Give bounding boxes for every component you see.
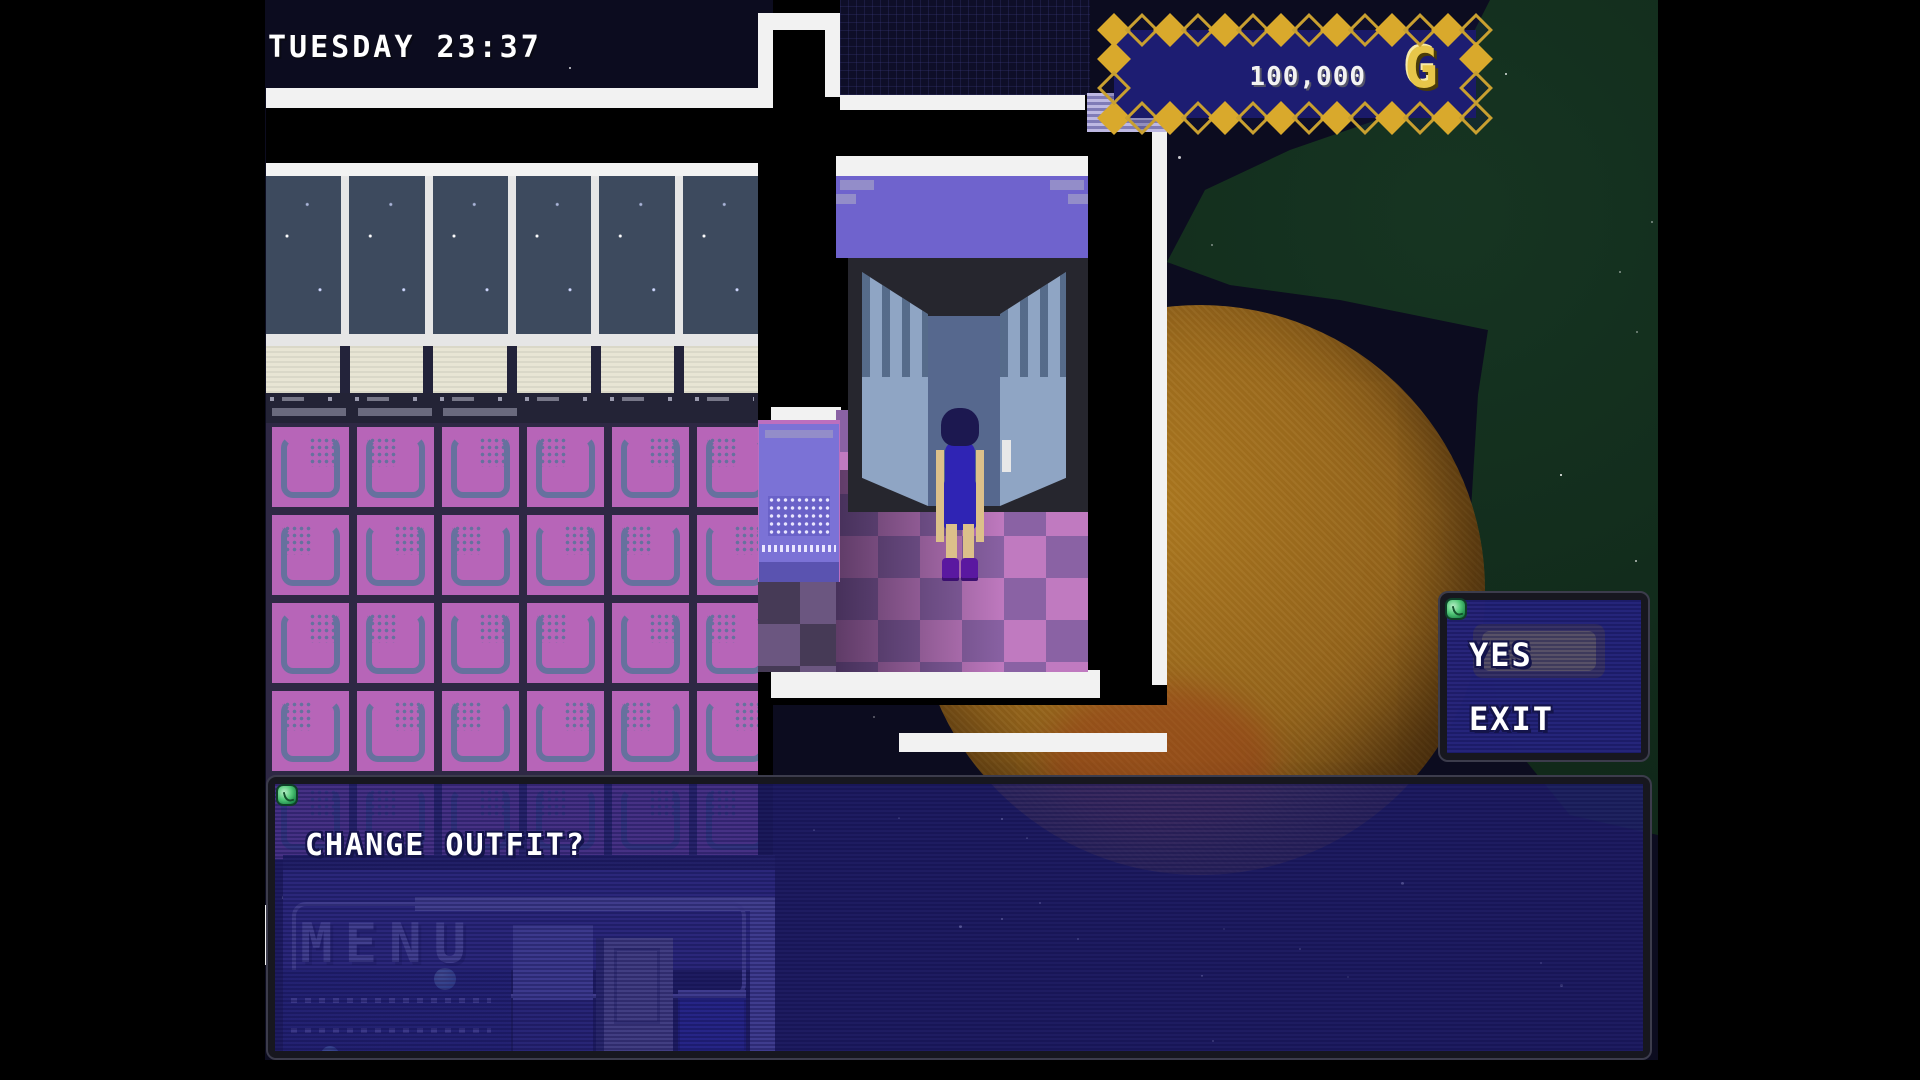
terminal-machine[interactable] (759, 424, 839, 582)
choice-dialog: YES EXIT (1440, 593, 1648, 760)
floor-tile (272, 515, 349, 595)
player-arm (976, 450, 984, 542)
star (1619, 271, 1621, 273)
player-character (935, 408, 985, 578)
player-hair (941, 408, 979, 446)
circuit-roof-block (840, 0, 1090, 95)
money-amount: 100,000 (1249, 62, 1366, 92)
wall-corridor-cap (758, 13, 840, 30)
star (1636, 331, 1638, 333)
floor-tile (697, 427, 758, 507)
floor-tile (442, 427, 519, 507)
star (1211, 244, 1213, 246)
wall-changing-bottom-2 (899, 733, 1167, 752)
drawer-handle (443, 408, 517, 416)
floor-tile (612, 691, 689, 771)
prompt-text: CHANGE OUTFIT? (305, 828, 586, 863)
floor-tile (357, 603, 434, 683)
wall-changing-top (840, 95, 1085, 110)
star (569, 67, 571, 69)
floor-tile (527, 691, 604, 771)
window-pane (516, 176, 591, 334)
awning-decor (840, 180, 874, 190)
star (1178, 156, 1181, 159)
shelf-section (433, 346, 507, 393)
wall-corridor-right (825, 30, 840, 97)
awning-decor (1050, 180, 1084, 190)
terminal-decor (765, 430, 833, 438)
shelf-section (601, 346, 675, 393)
shelf-section (350, 346, 424, 393)
awning-decor (1068, 194, 1088, 204)
game-viewport: MENU TUESDAY 23:37 100,000 G YES EXIT CH… (265, 0, 1658, 1060)
player-boot (961, 558, 978, 578)
shelf-section (266, 346, 340, 393)
floor-tile (357, 691, 434, 771)
dialog-tint (275, 784, 1643, 1051)
floor-tile (612, 427, 689, 507)
wall-shop-top (266, 88, 758, 108)
terminal-keyboard (768, 496, 830, 536)
shelf-section (684, 346, 758, 393)
floor-tile (272, 691, 349, 771)
terminal-decor (762, 545, 836, 552)
floor-tile (442, 603, 519, 683)
shop-shelf (266, 346, 758, 393)
choice-option-exit[interactable]: EXIT (1469, 700, 1554, 738)
floor-tile (442, 515, 519, 595)
player-boot (942, 558, 959, 578)
floor-tile (612, 515, 689, 595)
wall-changing-right (1152, 132, 1167, 685)
gem-icon (1445, 598, 1467, 620)
window-pane (349, 176, 424, 334)
floor-tile (612, 603, 689, 683)
shelf-section (517, 346, 591, 393)
shop-counter (266, 393, 758, 423)
wardrobe-label (1002, 440, 1011, 472)
floor-tile (697, 603, 758, 683)
wardrobe-door-left (862, 272, 928, 506)
window-pane (433, 176, 508, 334)
counter-decor (270, 397, 754, 401)
floor-tile (697, 691, 758, 771)
terminal-shade (759, 562, 839, 582)
shop-windows (266, 176, 758, 334)
awning (836, 176, 1088, 258)
drawer-handle (272, 408, 346, 416)
star (1505, 73, 1507, 75)
floor-tile (527, 603, 604, 683)
floor-tile (527, 427, 604, 507)
floor-tile (697, 515, 758, 595)
clock-text: TUESDAY 23:37 (268, 30, 542, 65)
floor-tile (357, 515, 434, 595)
prompt-dialog: CHANGE OUTFIT? (268, 777, 1650, 1058)
wall-changing-bottom-1 (771, 670, 1100, 698)
floor-tile (442, 691, 519, 771)
drawer-handle (358, 408, 432, 416)
shaded-floor (758, 582, 836, 672)
gem-icon (276, 784, 298, 806)
floor-tile (272, 427, 349, 507)
star (1651, 221, 1653, 223)
player-dress (942, 472, 978, 530)
wall-corridor-sill (771, 407, 841, 420)
player-arm (936, 450, 944, 542)
floor-tile (357, 427, 434, 507)
floor-tile (272, 603, 349, 683)
star (1560, 474, 1562, 476)
star (1635, 560, 1637, 562)
wall-changing-inner-top (836, 156, 1088, 176)
awning-decor (836, 194, 856, 204)
window-pane (599, 176, 674, 334)
wall-corridor-left (758, 30, 773, 108)
wall-window-top (266, 163, 758, 176)
window-sill (266, 334, 758, 346)
window-pane (266, 176, 341, 334)
floor-tile (527, 515, 604, 595)
star (873, 716, 875, 718)
window-pane (683, 176, 758, 334)
choice-option-yes[interactable]: YES (1469, 636, 1533, 674)
